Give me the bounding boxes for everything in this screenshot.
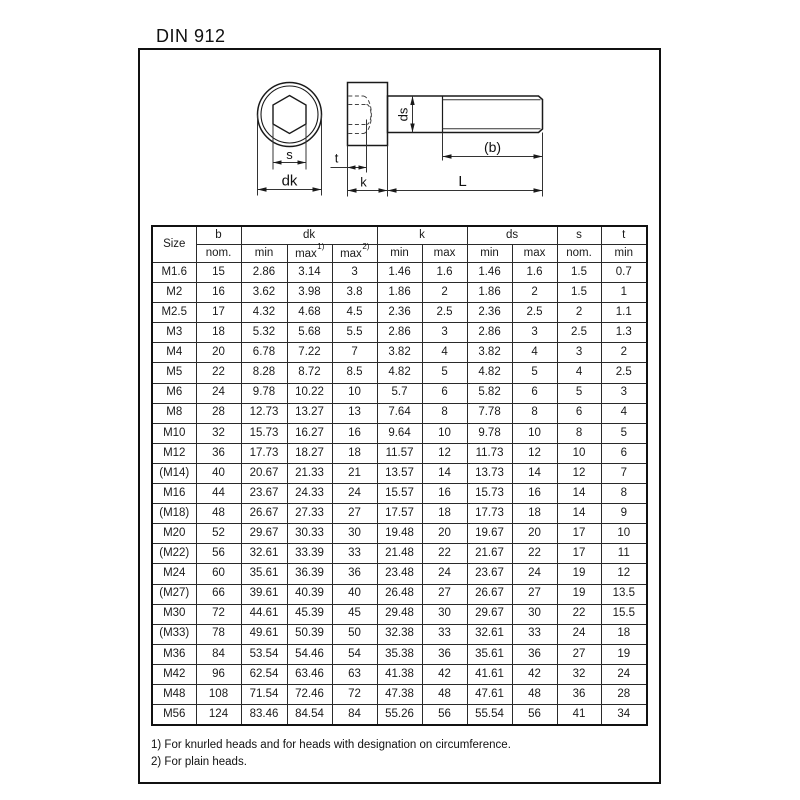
subheader-k-min: min [377, 245, 422, 263]
table-row: M3185.325.685.52.8632.8632.51.3 [152, 323, 647, 343]
size-cell: M48 [152, 684, 196, 704]
value-cell: 41.61 [467, 664, 512, 684]
value-cell: 18.27 [287, 443, 332, 463]
value-cell: 10.22 [287, 383, 332, 403]
value-cell: 22 [557, 604, 601, 624]
value-cell: 18 [422, 504, 467, 524]
shank-side-view [388, 96, 543, 133]
table-row: M164423.6724.332415.571615.7316148 [152, 484, 647, 504]
value-cell: 18 [196, 323, 241, 343]
table-row: M2163.623.983.81.8621.8621.51 [152, 283, 647, 303]
value-cell: 50 [332, 624, 377, 644]
value-cell: 41 [557, 705, 601, 726]
size-cell: (M33) [152, 624, 196, 644]
value-cell: 18 [512, 504, 557, 524]
value-cell: 41.38 [377, 664, 422, 684]
value-cell: 3.14 [287, 263, 332, 283]
value-cell: 28 [196, 403, 241, 423]
value-cell: 5.68 [287, 323, 332, 343]
value-cell: 3 [557, 343, 601, 363]
subheader-t-min: min [601, 245, 647, 263]
value-cell: 84 [196, 644, 241, 664]
size-cell: M8 [152, 403, 196, 423]
value-cell: 2 [422, 283, 467, 303]
value-cell: 1.1 [601, 303, 647, 323]
value-cell: 8 [512, 403, 557, 423]
value-cell: 13.27 [287, 403, 332, 423]
size-cell: M30 [152, 604, 196, 624]
footnote-mark-2: 2) [362, 242, 369, 251]
value-cell: 27 [422, 584, 467, 604]
value-cell: 33 [332, 544, 377, 564]
value-cell: 1.5 [557, 283, 601, 303]
value-cell: 1.3 [601, 323, 647, 343]
value-cell: 1.86 [467, 283, 512, 303]
value-cell: 4.5 [332, 303, 377, 323]
value-cell: 17.73 [241, 443, 287, 463]
k-label: k [360, 175, 367, 190]
value-cell: 72 [332, 684, 377, 704]
value-cell: 3 [512, 323, 557, 343]
value-cell: 23.67 [241, 484, 287, 504]
value-cell: 60 [196, 564, 241, 584]
value-cell: 6 [557, 403, 601, 423]
value-cell: 18 [332, 443, 377, 463]
size-cell: M4 [152, 343, 196, 363]
value-cell: 11.73 [467, 443, 512, 463]
value-cell: 52 [196, 524, 241, 544]
dimension-table: Size b dk k ds s t nom. min max1) max2) … [151, 225, 648, 726]
table-header: Size b dk k ds s t nom. min max1) max2) … [152, 226, 647, 263]
size-cell: M5 [152, 363, 196, 383]
value-cell: 48 [512, 684, 557, 704]
value-cell: 7.64 [377, 403, 422, 423]
value-cell: 72 [196, 604, 241, 624]
value-cell: 12 [557, 463, 601, 483]
L-dimension: L [388, 133, 543, 197]
table-row: M1.6152.863.1431.461.61.461.61.50.7 [152, 263, 647, 283]
value-cell: 21 [332, 463, 377, 483]
value-cell: 3.8 [332, 283, 377, 303]
screw-technical-drawing: s dk [140, 50, 661, 216]
size-cell: M24 [152, 564, 196, 584]
b-label: (b) [484, 139, 501, 155]
col-header-k: k [377, 226, 467, 245]
value-cell: 36 [512, 644, 557, 664]
value-cell: 17.57 [377, 504, 422, 524]
value-cell: 83.46 [241, 705, 287, 726]
value-cell: 4.32 [241, 303, 287, 323]
value-cell: 4.82 [467, 363, 512, 383]
value-cell: 8 [601, 484, 647, 504]
value-cell: 8 [557, 423, 601, 443]
s-dimension: s [273, 124, 306, 170]
value-cell: 22 [196, 363, 241, 383]
table-body: M1.6152.863.1431.461.61.461.61.50.7M2163… [152, 263, 647, 726]
value-cell: 2.5 [601, 363, 647, 383]
size-cell: M36 [152, 644, 196, 664]
table-row: (M14)4020.6721.332113.571413.7314127 [152, 463, 647, 483]
size-cell: (M27) [152, 584, 196, 604]
table-row: M2.5174.324.684.52.362.52.362.521.1 [152, 303, 647, 323]
value-cell: 3 [422, 323, 467, 343]
value-cell: 1 [601, 283, 647, 303]
size-cell: M2 [152, 283, 196, 303]
subheader-dk-max1: max1) [287, 245, 332, 263]
value-cell: 17.73 [467, 504, 512, 524]
value-cell: 5.32 [241, 323, 287, 343]
subheader-ds-max: max [512, 245, 557, 263]
value-cell: 7.22 [287, 343, 332, 363]
value-cell: 2.5 [512, 303, 557, 323]
value-cell: 16.27 [287, 423, 332, 443]
value-cell: 48 [196, 504, 241, 524]
table-row: M307244.6145.394529.483029.67302215.5 [152, 604, 647, 624]
value-cell: 15.5 [601, 604, 647, 624]
table-row: (M22)5632.6133.393321.482221.67221711 [152, 544, 647, 564]
value-cell: 5 [557, 383, 601, 403]
value-cell: 56 [512, 705, 557, 726]
value-cell: 24 [557, 624, 601, 644]
value-cell: 1.46 [467, 263, 512, 283]
hex-socket-outline [273, 96, 306, 134]
value-cell: 21.48 [377, 544, 422, 564]
value-cell: 26.67 [241, 504, 287, 524]
head-front-view [258, 83, 322, 147]
value-cell: 21.67 [467, 544, 512, 564]
value-cell: 5.5 [332, 323, 377, 343]
value-cell: 56 [196, 544, 241, 564]
value-cell: 2.5 [422, 303, 467, 323]
col-header-b: b [196, 226, 241, 245]
value-cell: 19 [557, 564, 601, 584]
value-cell: 42 [422, 664, 467, 684]
value-cell: 39.61 [241, 584, 287, 604]
value-cell: 12 [601, 564, 647, 584]
value-cell: 12 [422, 443, 467, 463]
table-row: M205229.6730.333019.482019.67201710 [152, 524, 647, 544]
value-cell: 55.26 [377, 705, 422, 726]
value-cell: 10 [512, 423, 557, 443]
value-cell: 9.78 [241, 383, 287, 403]
value-cell: 72.46 [287, 684, 332, 704]
value-cell: 26.48 [377, 584, 422, 604]
value-cell: 1.5 [557, 263, 601, 283]
col-header-size: Size [152, 226, 196, 263]
value-cell: 5.82 [467, 383, 512, 403]
value-cell: 49.61 [241, 624, 287, 644]
value-cell: 7 [332, 343, 377, 363]
value-cell: 19.67 [467, 524, 512, 544]
value-cell: 4.68 [287, 303, 332, 323]
col-header-t: t [601, 226, 647, 245]
value-cell: 20.67 [241, 463, 287, 483]
table-row: M368453.5454.465435.383635.61362719 [152, 644, 647, 664]
b-dimension: (b) [443, 133, 543, 161]
value-cell: 54 [332, 644, 377, 664]
table-row: (M18)4826.6727.332717.571817.7318149 [152, 504, 647, 524]
subheader-dk-min: min [241, 245, 287, 263]
value-cell: 27 [512, 584, 557, 604]
value-cell: 22 [422, 544, 467, 564]
value-cell: 53.54 [241, 644, 287, 664]
value-cell: 36.39 [287, 564, 332, 584]
value-cell: 14 [512, 463, 557, 483]
table-row: M4810871.5472.467247.384847.61483628 [152, 684, 647, 704]
value-cell: 13 [332, 403, 377, 423]
value-cell: 3 [601, 383, 647, 403]
value-cell: 12.73 [241, 403, 287, 423]
value-cell: 17 [557, 544, 601, 564]
s-label: s [286, 147, 293, 162]
table-row: M5228.288.728.54.8254.82542.5 [152, 363, 647, 383]
size-cell: M10 [152, 423, 196, 443]
value-cell: 8.5 [332, 363, 377, 383]
value-cell: 2 [557, 303, 601, 323]
table-row: M4206.787.2273.8243.82432 [152, 343, 647, 363]
value-cell: 20 [196, 343, 241, 363]
value-cell: 40 [332, 584, 377, 604]
value-cell: 15 [196, 263, 241, 283]
value-cell: 26.67 [467, 584, 512, 604]
value-cell: 19 [601, 644, 647, 664]
value-cell: 18 [601, 624, 647, 644]
value-cell: 78 [196, 624, 241, 644]
value-cell: 54.46 [287, 644, 332, 664]
size-cell: M12 [152, 443, 196, 463]
value-cell: 40.39 [287, 584, 332, 604]
value-cell: 23.67 [467, 564, 512, 584]
value-cell: 96 [196, 664, 241, 684]
col-header-ds: ds [467, 226, 557, 245]
value-cell: 3.98 [287, 283, 332, 303]
value-cell: 10 [332, 383, 377, 403]
value-cell: 4 [422, 343, 467, 363]
value-cell: 8 [422, 403, 467, 423]
size-cell: (M22) [152, 544, 196, 564]
value-cell: 47.61 [467, 684, 512, 704]
table-row: M6249.7810.22105.765.82653 [152, 383, 647, 403]
value-cell: 33 [422, 624, 467, 644]
value-cell: 13.57 [377, 463, 422, 483]
col-header-dk: dk [241, 226, 377, 245]
value-cell: 108 [196, 684, 241, 704]
value-cell: 22 [512, 544, 557, 564]
value-cell: 17 [557, 524, 601, 544]
k-dimension: k [348, 146, 388, 197]
value-cell: 44.61 [241, 604, 287, 624]
value-cell: 71.54 [241, 684, 287, 704]
size-cell: (M18) [152, 504, 196, 524]
value-cell: 35.61 [467, 644, 512, 664]
value-cell: 27.33 [287, 504, 332, 524]
value-cell: 48 [422, 684, 467, 704]
value-cell: 24 [601, 664, 647, 684]
value-cell: 19.48 [377, 524, 422, 544]
value-cell: 124 [196, 705, 241, 726]
value-cell: 14 [557, 504, 601, 524]
value-cell: 4.82 [377, 363, 422, 383]
value-cell: 4 [557, 363, 601, 383]
value-cell: 30 [422, 604, 467, 624]
value-cell: 45 [332, 604, 377, 624]
document-page: DIN 912 s dk [0, 0, 800, 800]
value-cell: 63.46 [287, 664, 332, 684]
value-cell: 9.78 [467, 423, 512, 443]
value-cell: 3 [332, 263, 377, 283]
value-cell: 36 [422, 644, 467, 664]
value-cell: 8.28 [241, 363, 287, 383]
value-cell: 3.82 [467, 343, 512, 363]
value-cell: 30 [332, 524, 377, 544]
value-cell: 27 [332, 504, 377, 524]
value-cell: 40 [196, 463, 241, 483]
value-cell: 2.36 [467, 303, 512, 323]
value-cell: 2.36 [377, 303, 422, 323]
footnote-mark-1: 1) [317, 242, 324, 251]
value-cell: 36 [332, 564, 377, 584]
value-cell: 3.82 [377, 343, 422, 363]
value-cell: 5.7 [377, 383, 422, 403]
table-row: M246035.6136.393623.482423.67241912 [152, 564, 647, 584]
value-cell: 7.78 [467, 403, 512, 423]
L-label: L [458, 173, 466, 190]
value-cell: 32 [557, 664, 601, 684]
value-cell: 55.54 [467, 705, 512, 726]
value-cell: 5 [601, 423, 647, 443]
value-cell: 6 [601, 443, 647, 463]
value-cell: 32 [196, 423, 241, 443]
value-cell: 29.48 [377, 604, 422, 624]
value-cell: 2.5 [557, 323, 601, 343]
value-cell: 29.67 [467, 604, 512, 624]
size-cell: M42 [152, 664, 196, 684]
value-cell: 32.38 [377, 624, 422, 644]
value-cell: 32.61 [467, 624, 512, 644]
col-header-s: s [557, 226, 601, 245]
value-cell: 63 [332, 664, 377, 684]
subheader-k-max: max [422, 245, 467, 263]
value-cell: 50.39 [287, 624, 332, 644]
value-cell: 2.86 [241, 263, 287, 283]
value-cell: 42 [512, 664, 557, 684]
value-cell: 8.72 [287, 363, 332, 383]
value-cell: 6.78 [241, 343, 287, 363]
value-cell: 33 [512, 624, 557, 644]
value-cell: 56 [422, 705, 467, 726]
value-cell: 16 [332, 423, 377, 443]
value-cell: 84.54 [287, 705, 332, 726]
value-cell: 16 [422, 484, 467, 504]
value-cell: 30.33 [287, 524, 332, 544]
subheader-ds-min: min [467, 245, 512, 263]
value-cell: 9.64 [377, 423, 422, 443]
value-cell: 29.67 [241, 524, 287, 544]
value-cell: 5 [422, 363, 467, 383]
value-cell: 15.73 [241, 423, 287, 443]
value-cell: 24 [332, 484, 377, 504]
table-row: (M33)7849.6150.395032.383332.61332418 [152, 624, 647, 644]
page-title: DIN 912 [156, 27, 226, 47]
size-cell: M1.6 [152, 263, 196, 283]
value-cell: 1.46 [377, 263, 422, 283]
value-cell: 21.33 [287, 463, 332, 483]
value-cell: 2 [601, 343, 647, 363]
value-cell: 33.39 [287, 544, 332, 564]
size-cell: M20 [152, 524, 196, 544]
table-row: M5612483.4684.548455.265655.54564134 [152, 705, 647, 726]
value-cell: 4 [601, 403, 647, 423]
dk-label: dk [282, 173, 298, 190]
value-cell: 1.6 [422, 263, 467, 283]
value-cell: 3.62 [241, 283, 287, 303]
value-cell: 2 [512, 283, 557, 303]
value-cell: 1.6 [512, 263, 557, 283]
subheader-s-nom: nom. [557, 245, 601, 263]
value-cell: 13.73 [467, 463, 512, 483]
value-cell: 7 [601, 463, 647, 483]
value-cell: 19 [557, 584, 601, 604]
value-cell: 5 [512, 363, 557, 383]
table-row: M103215.7316.27169.64109.781085 [152, 423, 647, 443]
table-row: (M27)6639.6140.394026.482726.67271913.5 [152, 584, 647, 604]
size-cell: M56 [152, 705, 196, 726]
value-cell: 16 [512, 484, 557, 504]
value-cell: 32.61 [241, 544, 287, 564]
table-row: M123617.7318.271811.571211.7312106 [152, 443, 647, 463]
value-cell: 62.54 [241, 664, 287, 684]
value-cell: 14 [557, 484, 601, 504]
size-cell: M16 [152, 484, 196, 504]
value-cell: 35.38 [377, 644, 422, 664]
value-cell: 20 [512, 524, 557, 544]
value-cell: 1.86 [377, 283, 422, 303]
subheader-dk-max2: max2) [332, 245, 377, 263]
value-cell: 0.7 [601, 263, 647, 283]
value-cell: 66 [196, 584, 241, 604]
size-cell: M6 [152, 383, 196, 403]
value-cell: 24.33 [287, 484, 332, 504]
value-cell: 10 [557, 443, 601, 463]
size-cell: (M14) [152, 463, 196, 483]
footnote-1: 1) For knurled heads and for heads with … [151, 739, 511, 753]
value-cell: 17 [196, 303, 241, 323]
value-cell: 16 [196, 283, 241, 303]
t-label: t [335, 151, 339, 166]
table-row: M429662.5463.466341.384241.61423224 [152, 664, 647, 684]
value-cell: 10 [601, 524, 647, 544]
value-cell: 20 [422, 524, 467, 544]
value-cell: 45.39 [287, 604, 332, 624]
value-cell: 2.86 [377, 323, 422, 343]
value-cell: 28 [601, 684, 647, 704]
value-cell: 27 [557, 644, 601, 664]
value-cell: 24 [512, 564, 557, 584]
value-cell: 11.57 [377, 443, 422, 463]
value-cell: 14 [422, 463, 467, 483]
value-cell: 47.38 [377, 684, 422, 704]
hidden-socket-lines [348, 96, 371, 134]
value-cell: 13.5 [601, 584, 647, 604]
value-cell: 44 [196, 484, 241, 504]
value-cell: 30 [512, 604, 557, 624]
value-cell: 24 [196, 383, 241, 403]
value-cell: 10 [422, 423, 467, 443]
value-cell: 36 [557, 684, 601, 704]
value-cell: 36 [196, 443, 241, 463]
value-cell: 4 [512, 343, 557, 363]
subheader-b-nom: nom. [196, 245, 241, 263]
